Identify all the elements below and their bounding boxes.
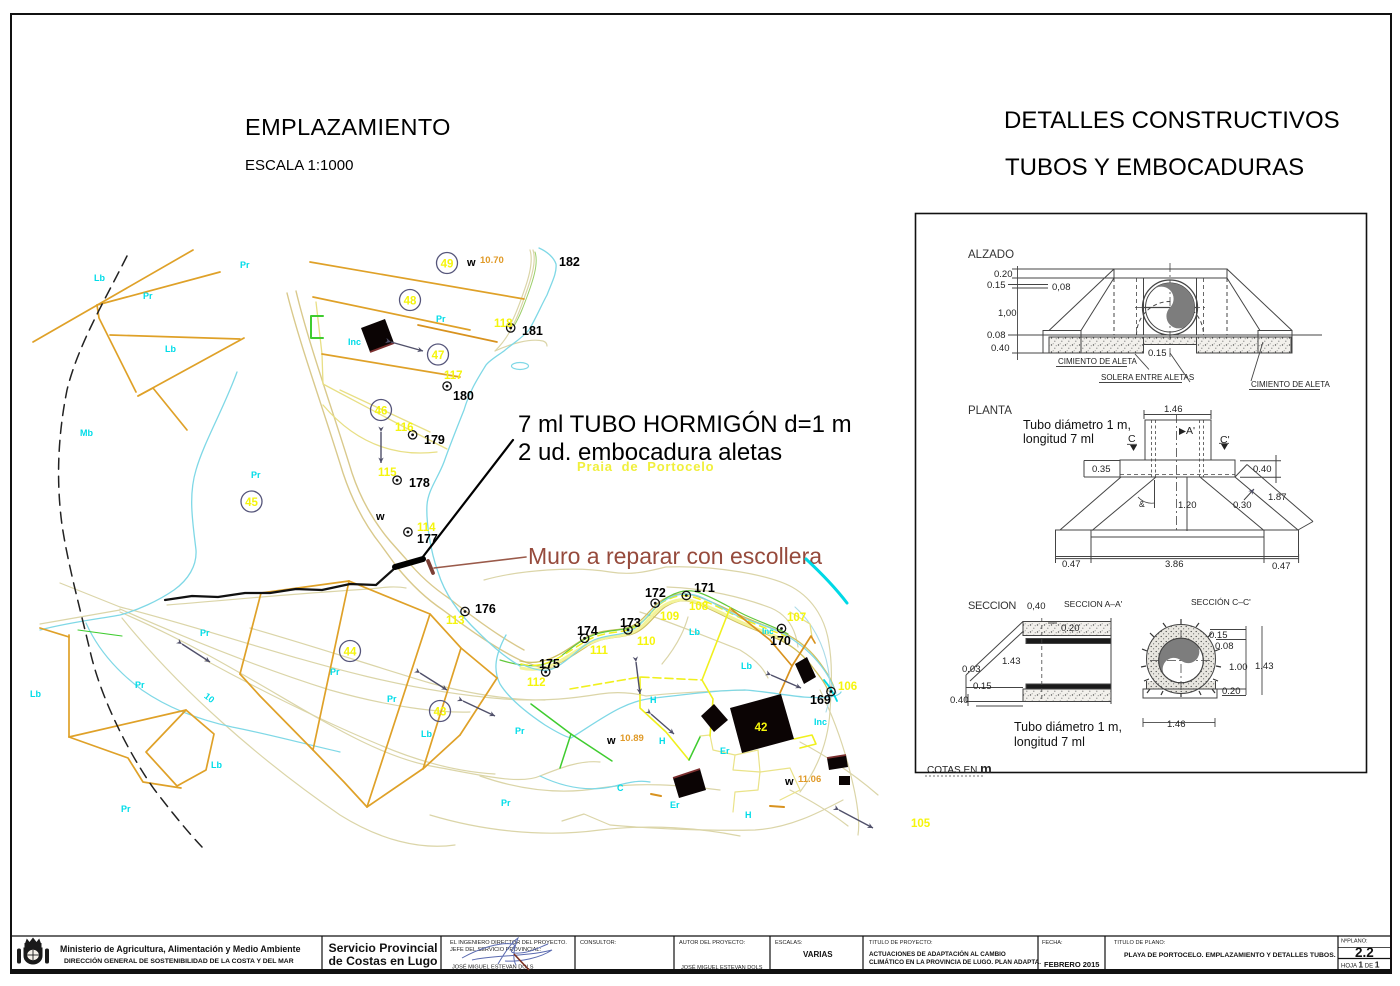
svg-text:114: 114 [417, 522, 436, 534]
svg-text:0,08: 0,08 [1052, 282, 1071, 293]
svg-text:10.70: 10.70 [480, 255, 504, 266]
svg-text:0.20: 0.20 [1222, 686, 1241, 697]
svg-text:AUTOR DEL PROYECTO:: AUTOR DEL PROYECTO: [679, 940, 746, 946]
svg-text:Tubo diámetro 1 m,: Tubo diámetro 1 m, [1014, 720, 1122, 734]
svg-text:ACTUACIONES DE ADAPTACIÓN AL C: ACTUACIONES DE ADAPTACIÓN AL CAMBIO [869, 949, 1006, 958]
svg-text:175: 175 [539, 657, 560, 671]
svg-text:182: 182 [559, 255, 580, 269]
svg-text:Pr: Pr [330, 667, 340, 677]
svg-text:CONSULTOR:: CONSULTOR: [580, 940, 617, 946]
svg-text:TITULO DE PLANO:: TITULO DE PLANO: [1114, 940, 1166, 946]
svg-text:1,00: 1,00 [998, 308, 1017, 319]
svg-text:3.86: 3.86 [1165, 559, 1184, 570]
svg-text:107: 107 [787, 612, 806, 624]
svg-text:11.06: 11.06 [798, 774, 821, 785]
svg-text:108: 108 [689, 601, 709, 613]
svg-text:0.20: 0.20 [994, 269, 1013, 280]
svg-text:Lb: Lb [211, 760, 222, 770]
svg-text:105: 105 [911, 818, 931, 830]
svg-text:106: 106 [838, 681, 857, 693]
svg-text:Ministerio de Agricultura, Ali: Ministerio de Agricultura, Alimentación … [60, 944, 301, 954]
svg-text:0.40: 0.40 [991, 343, 1010, 354]
svg-text:EL INGENIERO DIRECTOR DEL: EL INGENIERO DIRECTOR DEL PROYECTO. [450, 940, 567, 946]
svg-text:VARIAS: VARIAS [803, 950, 833, 959]
svg-text:117: 117 [444, 370, 463, 382]
svg-text:JOSÉ MIGUEL ESTEVAN DOLS: JOSÉ MIGUEL ESTEVAN DOLS [452, 964, 534, 971]
svg-text:NºPLANO:: NºPLANO: [1341, 938, 1368, 945]
svg-text:47: 47 [432, 350, 445, 362]
svg-text:w: w [606, 735, 616, 747]
svg-text:118: 118 [494, 318, 513, 330]
svg-text:1.43: 1.43 [1002, 656, 1021, 667]
svg-text:Pr: Pr [240, 260, 250, 270]
svg-text:PLAYA DE PORTOCELO. EMPLAZAMIE: PLAYA DE PORTOCELO. EMPLAZAMIENTO Y DETA… [1124, 952, 1336, 959]
svg-text:43: 43 [434, 707, 447, 719]
svg-text:180: 180 [453, 389, 474, 403]
svg-text:Pr: Pr [251, 470, 261, 480]
svg-text:45: 45 [245, 497, 258, 509]
svg-text:ESCALAS:: ESCALAS: [775, 940, 803, 946]
svg-text:0.08: 0.08 [987, 330, 1006, 341]
svg-text:42: 42 [755, 722, 768, 734]
svg-text:176: 176 [475, 602, 496, 616]
svg-text:172: 172 [645, 586, 666, 600]
svg-text:CIMIENTO DE ALETA: CIMIENTO DE ALETA [1058, 357, 1137, 366]
svg-text:1.46: 1.46 [1164, 404, 1183, 415]
svg-text:0.30: 0.30 [1233, 500, 1252, 511]
svg-text:longitud 7 ml: longitud 7 ml [1023, 432, 1094, 446]
svg-text:A': A' [1186, 425, 1195, 437]
svg-text:0,40: 0,40 [1027, 601, 1046, 612]
svg-text:Lb: Lb [165, 344, 176, 354]
svg-text:Inc: Inc [348, 337, 361, 347]
svg-text:SECCION: SECCION [968, 600, 1016, 612]
svg-text:0.47: 0.47 [1062, 559, 1081, 570]
svg-text:Lb: Lb [421, 729, 432, 739]
svg-text:JEFE DEL SERVICIO PROVINCIA: JEFE DEL SERVICIO PROVINCIAL: [450, 947, 542, 953]
svg-text:1.87: 1.87 [1268, 492, 1287, 503]
svg-text:173: 173 [620, 616, 641, 630]
svg-text:115: 115 [378, 467, 397, 479]
svg-text:Inc: Inc [762, 627, 774, 636]
svg-text:0.40: 0.40 [1253, 464, 1272, 475]
svg-text:Servicio Provincial: Servicio Provincial [328, 941, 437, 955]
svg-text:w: w [466, 257, 476, 269]
svg-text:ALZADO: ALZADO [968, 249, 1014, 261]
svg-text:JOSÉ MIGUEL ESTEVAN DOLS: JOSÉ MIGUEL ESTEVAN DOLS [681, 964, 763, 971]
svg-text:Mb: Mb [80, 428, 93, 438]
svg-text:FECHA:: FECHA: [1042, 940, 1063, 946]
svg-text:0.08: 0.08 [1215, 641, 1234, 652]
svg-text:Pr: Pr [501, 798, 511, 808]
svg-text:w: w [784, 776, 794, 788]
svg-text:Inc: Inc [814, 717, 827, 727]
svg-text:longitud 7 ml: longitud 7 ml [1014, 735, 1085, 749]
svg-text:Lb: Lb [30, 689, 41, 699]
svg-text:SOLERA ENTRE ALETAS: SOLERA ENTRE ALETAS [1101, 373, 1194, 382]
svg-text:0.03: 0.03 [962, 664, 981, 675]
svg-text:170: 170 [770, 634, 791, 648]
svg-text:C: C [1128, 433, 1136, 445]
svg-text:0.40: 0.40 [950, 695, 969, 706]
svg-text:Pr: Pr [200, 628, 210, 638]
svg-text:0.15: 0.15 [1148, 348, 1167, 359]
svg-text:10.89: 10.89 [620, 733, 644, 744]
svg-text:SECCIÓN C–C': SECCIÓN C–C' [1191, 597, 1251, 607]
svg-text:Pr: Pr [135, 680, 145, 690]
svg-text:49: 49 [441, 259, 454, 271]
svg-text:Praia de Portocelo: Praia de Portocelo [577, 459, 714, 474]
svg-text:2.2: 2.2 [1355, 945, 1374, 960]
svg-text:H: H [745, 810, 752, 820]
svg-text:179: 179 [424, 433, 445, 447]
svg-text:110: 110 [637, 636, 656, 648]
svg-text:Er: Er [670, 800, 680, 810]
svg-text:DIRECCIÓN GENERAL DE SOSTENIBI: DIRECCIÓN GENERAL DE SOSTENIBILIDAD DE L… [64, 956, 294, 965]
svg-text:48: 48 [404, 296, 417, 308]
svg-text:1.46: 1.46 [1167, 719, 1186, 730]
svg-text:Lb: Lb [94, 273, 105, 283]
svg-text:Pr: Pr [121, 804, 131, 814]
svg-text:109: 109 [660, 611, 679, 623]
svg-text:171: 171 [694, 581, 715, 595]
svg-text:111: 111 [590, 645, 609, 657]
svg-text:174: 174 [577, 624, 598, 638]
svg-text:169: 169 [810, 693, 831, 707]
svg-text:Pr: Pr [515, 726, 525, 736]
svg-text:1.00: 1.00 [1229, 662, 1248, 673]
svg-text:FEBRERO 2015: FEBRERO 2015 [1044, 960, 1099, 969]
svg-text:0.15: 0.15 [987, 280, 1006, 291]
svg-text:Tubo diámetro 1 m,: Tubo diámetro 1 m, [1023, 418, 1131, 432]
svg-text:44: 44 [344, 647, 357, 659]
svg-text:H: H [659, 736, 666, 746]
svg-text:1.43: 1.43 [1255, 661, 1274, 672]
svg-text:0.15: 0.15 [973, 681, 992, 692]
svg-text:Pr: Pr [387, 694, 397, 704]
svg-text:Lb: Lb [741, 661, 752, 671]
svg-text:COTAS EN m: COTAS EN m [927, 761, 992, 776]
svg-text:112: 112 [527, 677, 546, 689]
svg-text:HOJA 1 DE 1: HOJA 1 DE 1 [1341, 960, 1380, 970]
svg-text:10: 10 [202, 691, 216, 705]
svg-text:w: w [375, 511, 385, 523]
svg-text:Lb: Lb [689, 627, 700, 637]
svg-text:Pr: Pr [436, 314, 446, 324]
svg-text:181: 181 [522, 324, 543, 338]
svg-text:de Costas en Lugo: de Costas en Lugo [328, 954, 437, 968]
svg-text:SECCION A–A': SECCION A–A' [1064, 599, 1123, 609]
svg-text:PLANTA: PLANTA [968, 405, 1012, 417]
svg-text:Pr: Pr [143, 291, 153, 301]
svg-text:H: H [650, 695, 657, 705]
svg-text:0.20: 0.20 [1061, 623, 1080, 634]
svg-text:Er: Er [720, 746, 730, 756]
svg-text:177: 177 [417, 532, 438, 546]
svg-text:0.15: 0.15 [1209, 630, 1228, 641]
svg-text:&: & [1139, 499, 1145, 509]
svg-text:CIMIENTO DE ALETA: CIMIENTO DE ALETA [1251, 380, 1330, 389]
svg-text:1.20: 1.20 [1178, 500, 1197, 511]
svg-text:0.47: 0.47 [1272, 561, 1291, 572]
svg-text:CLIMÁTICO EN LA PROVINCIA DE L: CLIMÁTICO EN LA PROVINCIA DE LUGO. PLAN … [869, 957, 1041, 966]
svg-text:46: 46 [375, 406, 388, 418]
svg-text:113: 113 [446, 615, 465, 627]
svg-text:116: 116 [395, 422, 414, 434]
svg-text:178: 178 [409, 476, 430, 490]
svg-text:TITULO DE PROYECTO:: TITULO DE PROYECTO: [869, 940, 933, 946]
svg-text:0.35: 0.35 [1092, 464, 1111, 475]
svg-text:C: C [617, 783, 624, 793]
